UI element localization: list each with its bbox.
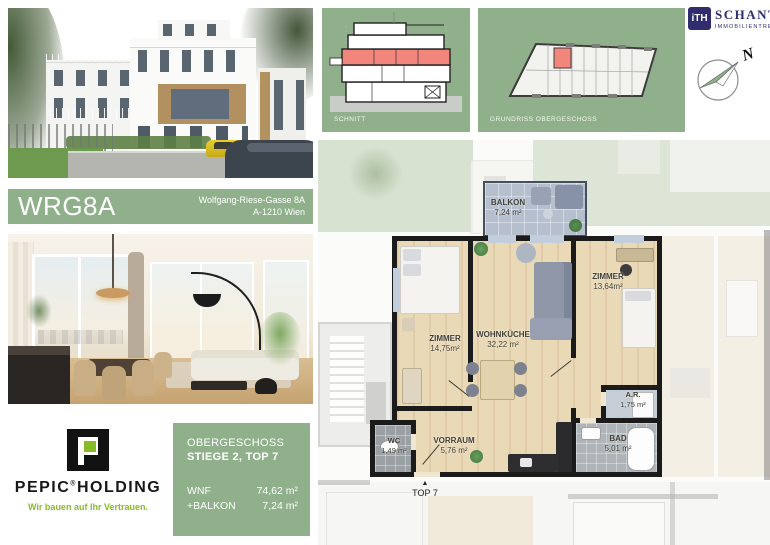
window-glazing — [614, 235, 644, 243]
pillow — [625, 291, 651, 301]
neighbor-furniture — [670, 368, 710, 398]
window-glazing — [530, 235, 564, 243]
building-exterior-photo — [8, 8, 313, 178]
pendant-lamp — [112, 234, 114, 290]
plant — [569, 219, 582, 232]
metric-value: 7,24 m² — [262, 500, 298, 512]
neighbor-room — [573, 502, 665, 545]
room-label-ar: A.R. 1,75 m² — [620, 390, 645, 410]
outdoor-chair — [531, 187, 551, 205]
room-name: WC — [381, 436, 406, 446]
window-mullion — [78, 254, 81, 362]
metric-row: WNF 74,62 m² — [187, 485, 298, 497]
room-area: 1,75 m² — [620, 400, 645, 410]
room-area: 14,75m² — [429, 344, 461, 354]
room-area: 13,64m² — [592, 282, 624, 292]
section-caption: SCHNITT — [334, 116, 366, 123]
room-area: 7,24 m² — [491, 208, 525, 218]
neighbor-hallway — [428, 496, 533, 545]
compass-north-label: N — [739, 45, 758, 65]
room-area: 5,01 m² — [604, 444, 631, 454]
wardrobe — [402, 368, 422, 404]
plant — [474, 242, 488, 256]
window-strip — [163, 24, 225, 36]
chair — [466, 384, 479, 397]
developer-block: PEPIC®HOLDING Wir bauen auf Ihr Vertraue… — [8, 413, 168, 541]
pepic-logo-green-square — [84, 441, 96, 452]
coffee-table — [516, 243, 536, 263]
room-name: ZIMMER — [429, 334, 461, 344]
wood-panel — [260, 72, 270, 142]
car-roof-highlight — [247, 143, 313, 152]
chair — [466, 362, 479, 375]
room-label-wohnkueche: WOHNKÜCHE 32,22 m² — [476, 330, 530, 351]
room-name: VORRAUM — [433, 436, 474, 446]
room-name: ZIMMER — [592, 272, 624, 282]
grundriss-panel: GRUNDRISS OBERGESCHOSS — [478, 8, 685, 132]
pepic-name: PEPIC®HOLDING — [8, 479, 168, 497]
neighbor-wall — [764, 230, 770, 480]
chair — [154, 352, 172, 378]
unit-info-box: OBERGESCHOSS STIEGE 2, TOP 7 WNF 74,62 m… — [173, 423, 310, 536]
wall — [397, 406, 472, 411]
elevator-ghost — [366, 382, 386, 424]
room-label-bad: BAD 5,01 m² — [604, 434, 631, 455]
room-label-wc: WC 1,49 m² — [381, 436, 406, 456]
neighbor-room — [618, 140, 660, 174]
neighbor-wall — [670, 482, 675, 545]
pepic-brand: PEPIC — [15, 479, 71, 496]
unit-floor: OBERGESCHOSS — [187, 437, 298, 449]
unit-number: STIEGE 2, TOP 7 — [187, 451, 298, 463]
window-glazing — [488, 235, 516, 243]
window-strip — [274, 80, 304, 130]
pepic-slogan: Wir bauen auf Ihr Vertrauen. — [8, 502, 168, 512]
plant — [26, 294, 52, 328]
tree-icon — [348, 146, 403, 201]
pillow — [403, 249, 421, 261]
chair — [74, 360, 96, 396]
room-label-zimmer-right: ZIMMER 13,64m² — [592, 272, 624, 293]
door-opening — [414, 472, 440, 477]
window-strip — [138, 50, 248, 72]
washbasin — [581, 427, 601, 440]
grundriss-drawing — [496, 38, 671, 102]
dining-table — [480, 360, 515, 400]
address-line2: A-1210 Wien — [199, 206, 305, 218]
glass-panel — [171, 89, 229, 119]
grundriss-caption: GRUNDRISS OBERGESCHOSS — [490, 116, 597, 123]
interior-photo — [8, 234, 313, 404]
stair-treads — [330, 336, 364, 422]
plant — [259, 312, 301, 366]
door-opening — [601, 392, 606, 406]
broker-logo: iTH SCHANTL IMMOBILIENTREUHAND — [688, 7, 770, 30]
entry-label: TOP 7 — [412, 488, 438, 498]
nightstand — [402, 318, 415, 331]
room-name: BAD — [604, 434, 631, 444]
ith-monogram: iTH — [688, 7, 711, 30]
compass-icon: N — [692, 44, 767, 110]
chair — [102, 366, 126, 400]
outdoor-sofa — [555, 185, 583, 209]
project-banner: WRG8A Wolfgang-Riese-Gasse 8A A-1210 Wie… — [8, 189, 313, 224]
neighbor-room — [326, 492, 423, 545]
room-area: 1,49 m² — [381, 446, 406, 456]
sofa-chaise — [530, 318, 572, 340]
broker-name: SCHANTL — [715, 7, 770, 23]
entry-marker: ▲ TOP 7 — [412, 481, 438, 498]
project-code: WRG8A — [18, 191, 116, 222]
kitchen-counter — [508, 454, 558, 472]
entry-arrow-icon: ▲ — [412, 481, 438, 487]
unit-metrics: WNF 74,62 m² +BALKON 7,24 m² — [187, 485, 298, 512]
chair — [514, 362, 527, 375]
neighbor-wall — [318, 480, 370, 485]
pepic-brand2: HOLDING — [77, 479, 161, 496]
room-area: 32,22 m² — [476, 340, 530, 350]
coffee-table — [191, 381, 247, 390]
room-name: WOHNKÜCHE — [476, 330, 530, 340]
door-opening — [411, 434, 416, 450]
side-table — [255, 378, 277, 394]
section-panel: SCHNITT — [322, 8, 470, 132]
neighbor-wall — [714, 236, 718, 477]
curtain — [128, 252, 144, 364]
registered-mark: ® — [70, 481, 77, 488]
room-name: BALKON — [491, 198, 525, 208]
kitchen-counter — [556, 422, 572, 472]
outdoor-table — [543, 209, 553, 219]
room-label-balkon: BALKON 7,24 m² — [491, 198, 525, 219]
neighbor-bed — [726, 280, 758, 337]
floorplan: BALKON 7,24 m² ZIMMER 14,75m² WOHNKÜCHE … — [318, 140, 770, 545]
wall — [468, 241, 473, 382]
chair — [132, 360, 154, 396]
room-label-zimmer-left: ZIMMER 14,75m² — [429, 334, 461, 355]
room-label-vorraum: VORRAUM 5,76 m² — [433, 436, 474, 457]
pillow — [403, 264, 421, 276]
metric-row: +BALKON 7,24 m² — [187, 500, 298, 512]
chair — [514, 384, 527, 397]
kitchen-sink — [520, 458, 532, 467]
metric-label: +BALKON — [187, 500, 236, 512]
pendant-lamp-shade — [96, 288, 130, 298]
room-name: A.R. — [620, 390, 645, 400]
desk — [616, 248, 654, 262]
project-address: Wolfgang-Riese-Gasse 8A A-1210 Wien — [199, 194, 305, 218]
pepic-logo — [67, 429, 109, 471]
door-opening — [580, 418, 596, 423]
address-line1: Wolfgang-Riese-Gasse 8A — [199, 194, 305, 206]
broker-tagline: IMMOBILIENTREUHAND — [715, 24, 770, 30]
section-drawing — [322, 8, 470, 132]
neighbor-room — [670, 140, 770, 192]
metric-label: WNF — [187, 485, 211, 497]
room-area: 5,76 m² — [433, 446, 474, 456]
metric-value: 74,62 m² — [257, 485, 298, 497]
kitchen-island — [8, 346, 70, 404]
city-skyline — [38, 330, 123, 344]
neighbor-wall — [568, 494, 718, 499]
